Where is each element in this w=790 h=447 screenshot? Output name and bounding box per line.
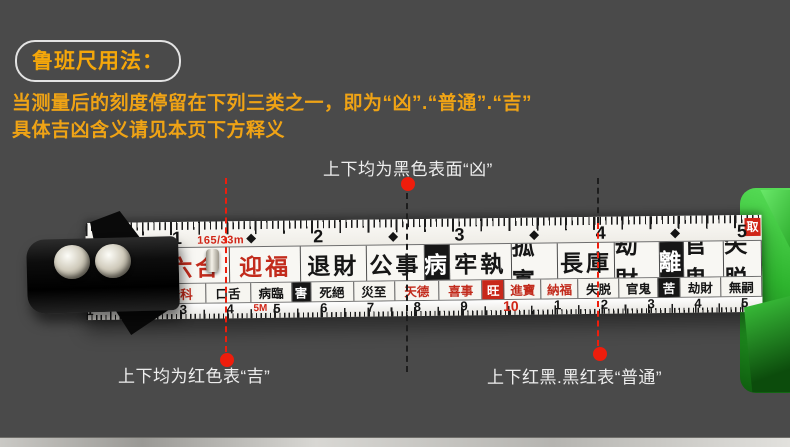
scale-number: 3 xyxy=(647,296,654,311)
scale-number: 4 xyxy=(226,301,233,316)
scale-number: 9 xyxy=(460,298,467,313)
tape-case-front xyxy=(744,296,790,392)
tape-cell: 害 xyxy=(292,282,311,301)
hook-rivet xyxy=(54,245,90,279)
scale-number: 6 xyxy=(320,300,327,315)
tape-cell: 官鬼 xyxy=(619,278,658,297)
tape-cell: 苦 xyxy=(658,278,680,297)
scale-number: 7 xyxy=(367,300,374,315)
tape-cell: 長庫 xyxy=(558,243,615,279)
leader-line-red xyxy=(597,223,599,346)
scale-number: 3 xyxy=(180,302,187,317)
scale-number: 8 xyxy=(414,299,421,314)
scale-number: 5 xyxy=(737,221,747,242)
bottom-image-strip xyxy=(0,437,790,447)
intro-line-1: 当测量后的刻度停留在下列三类之一，即为“凶”.“普通”.“吉” xyxy=(12,88,532,115)
diamond-mark xyxy=(388,232,398,242)
tape-cell: 牢執 xyxy=(449,244,511,280)
callout-red-surface: 上下均为红色表“吉” xyxy=(118,362,270,387)
scale-number: 2 xyxy=(601,297,608,312)
tape-cell: 劫財 xyxy=(680,277,721,296)
tape-5m-marker: 5M xyxy=(253,303,267,314)
tape-cell: 病臨 xyxy=(251,283,292,302)
tape-cell: 旺 xyxy=(483,280,505,299)
tape-model-text: 165/33m xyxy=(197,234,244,247)
measuring-tape: 165/33m 取 12345 庫財六合迎福退財公事病牢執孤寡長庫劫財離官鬼失脱… xyxy=(85,215,762,318)
scale-number: 4 xyxy=(694,296,701,311)
tape-cell: 迎福 xyxy=(230,247,301,283)
tape-cell: 納福 xyxy=(541,279,578,298)
tape-cell: 退財 xyxy=(301,246,367,282)
tape-cell: 官鬼 xyxy=(684,241,725,276)
tape-cell: 失脱 xyxy=(724,241,762,276)
tape-cell: 進寶 xyxy=(505,280,542,299)
red-dot-marker xyxy=(401,177,415,191)
tape-cell: 喜事 xyxy=(440,280,483,300)
tape-cell: 災至 xyxy=(354,281,395,300)
scale-number: 2 xyxy=(313,226,323,247)
title-badge: 鲁班尺用法： xyxy=(15,40,181,82)
red-dot-marker xyxy=(593,347,607,361)
leader-line-black xyxy=(406,193,408,372)
scale-number: 10 xyxy=(503,298,519,314)
scale-number: 1 xyxy=(554,297,561,312)
leader-line-red xyxy=(225,178,227,352)
tape-cell: 病 xyxy=(425,245,450,280)
tape-cell: 離 xyxy=(659,242,684,277)
tape-cell: 死絕 xyxy=(311,282,354,302)
tape-cell: 劫財 xyxy=(615,242,660,278)
scale-number: 5 xyxy=(273,301,280,316)
scale-number: 3 xyxy=(454,225,464,246)
tape-cell: 公事 xyxy=(366,245,425,281)
diamond-mark xyxy=(670,228,680,238)
tape-cell: 口舌 xyxy=(206,283,251,303)
diamond-mark xyxy=(246,234,256,244)
page: 鲁班尺用法： 当测量后的刻度停留在下列三类之一，即为“凶”.“普通”.“吉” 具… xyxy=(0,0,790,447)
intro-line-2: 具体吉凶含义请见本页下方释义 xyxy=(12,115,285,142)
tape-cell: 失脱 xyxy=(578,279,619,298)
leader-line-black xyxy=(597,178,599,223)
red-dot-marker xyxy=(220,353,234,367)
tape-cell: 天德 xyxy=(395,281,440,301)
diamond-mark xyxy=(529,230,539,240)
tape-stud xyxy=(206,249,219,272)
callout-mixed-surface: 上下红黑.黑红表“普通” xyxy=(487,363,662,388)
hook-rivet xyxy=(95,244,131,278)
tape-cell: 孤寡 xyxy=(512,243,559,279)
tape-cell: 無嗣 xyxy=(721,277,762,296)
